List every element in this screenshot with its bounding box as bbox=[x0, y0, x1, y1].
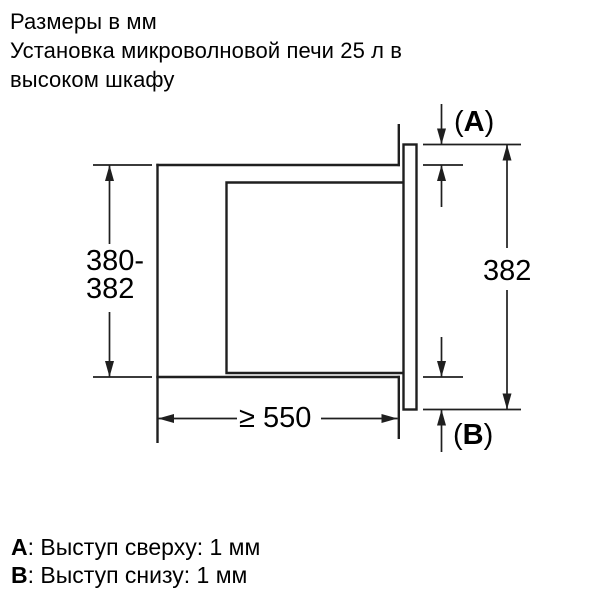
cabinet-outline bbox=[156, 124, 400, 443]
microwave-body-outline bbox=[227, 183, 405, 374]
arrow-up-icon bbox=[503, 145, 512, 161]
legend-key-a: A bbox=[11, 534, 28, 560]
frame-height-label: 382 bbox=[483, 255, 531, 287]
dimension-niche-height: 380- 382 bbox=[86, 165, 152, 377]
label-a: (A) bbox=[454, 106, 494, 138]
legend: A: Выступ сверху: 1 мм B: Выступ снизу: … bbox=[11, 534, 260, 589]
niche-width-label: ≥ 550 bbox=[239, 402, 311, 434]
microwave-front-panel bbox=[404, 145, 417, 410]
arrow-down-icon bbox=[503, 394, 512, 410]
label-b: (B) bbox=[453, 419, 493, 451]
arrow-down-icon bbox=[437, 129, 446, 145]
installation-diagram: 380- 382 (A) 382 (B) ≥ 550 bbox=[0, 0, 600, 600]
dimension-niche-width: ≥ 550 bbox=[158, 402, 398, 434]
legend-item-b: B: Выступ снизу: 1 мм bbox=[11, 562, 260, 590]
arrow-down-icon bbox=[105, 361, 114, 377]
legend-text-b: : Выступ снизу: 1 мм bbox=[28, 562, 248, 588]
arrow-up-icon bbox=[105, 165, 114, 181]
legend-key-b: B bbox=[11, 562, 28, 588]
legend-text-a: : Выступ сверху: 1 мм bbox=[28, 534, 261, 560]
dimension-frame-height: 382 bbox=[483, 145, 531, 410]
arrow-up-icon bbox=[437, 410, 446, 426]
arrow-right-icon bbox=[382, 414, 398, 423]
niche-height-label-line2: 382 bbox=[86, 273, 134, 305]
arrow-up-icon bbox=[437, 165, 446, 181]
arrow-down-icon bbox=[437, 361, 446, 377]
legend-item-a: A: Выступ сверху: 1 мм bbox=[11, 534, 260, 562]
